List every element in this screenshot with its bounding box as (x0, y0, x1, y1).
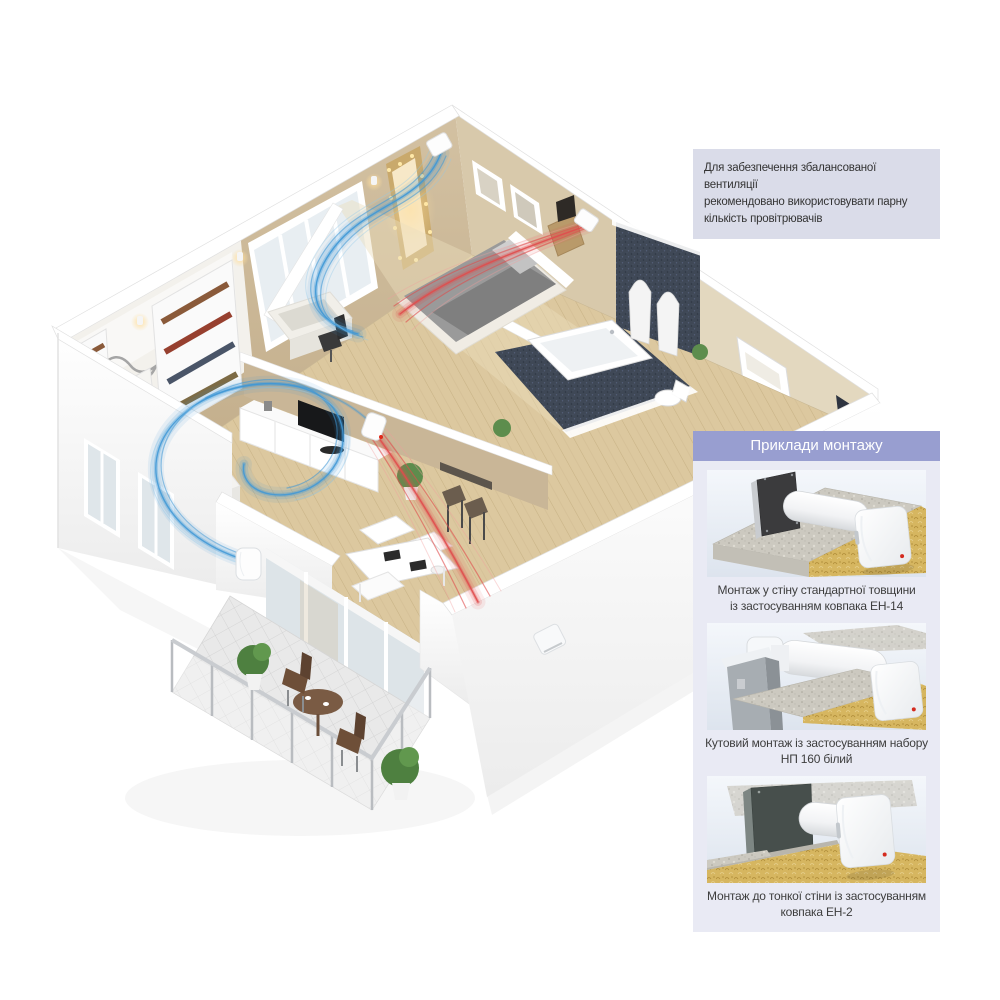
info-box: Для забезпечення збалансованої вентиляці… (693, 149, 940, 239)
caption-corner: Кутовий монтаж із застосуванням набору Н… (697, 735, 936, 767)
wall-plant (493, 419, 511, 437)
photo-frame (264, 401, 272, 411)
indoor-unit (870, 661, 924, 722)
panel-header: Приклади монтажу (693, 431, 940, 461)
supply-vent-living (236, 548, 261, 580)
caption-standard-wall: Монтаж у стіну стандартної товщини із за… (697, 582, 936, 614)
installation-photo-corner (707, 623, 926, 730)
installation-photo-thin-wall (707, 776, 926, 883)
caption-thin-wall: Монтаж до тонкої стіни із застосуванням … (697, 888, 936, 920)
bathroom-plant (692, 344, 708, 360)
page: Для забезпечення збалансованої вентиляці… (0, 0, 1000, 1000)
installation-panel: Приклади монтажу (693, 431, 940, 932)
balcony-table (293, 689, 343, 715)
installation-photo-standard-wall (707, 470, 926, 577)
led-indicator (379, 435, 383, 439)
